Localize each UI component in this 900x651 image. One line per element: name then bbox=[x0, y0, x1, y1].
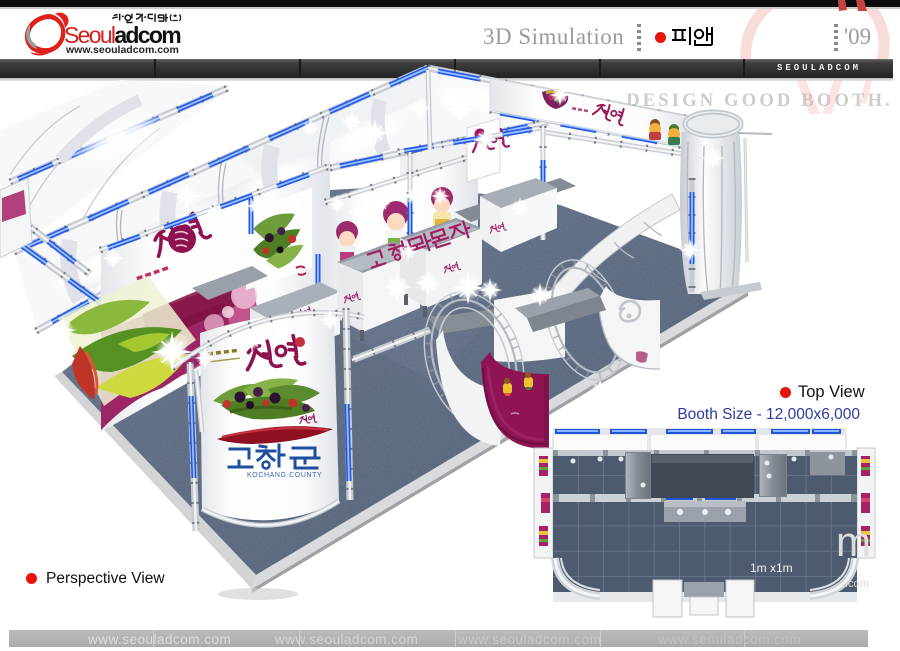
svg-text:1m x1m: 1m x1m bbox=[750, 561, 793, 575]
svg-text:KOCHANG COUNTY: KOCHANG COUNTY bbox=[247, 472, 322, 479]
